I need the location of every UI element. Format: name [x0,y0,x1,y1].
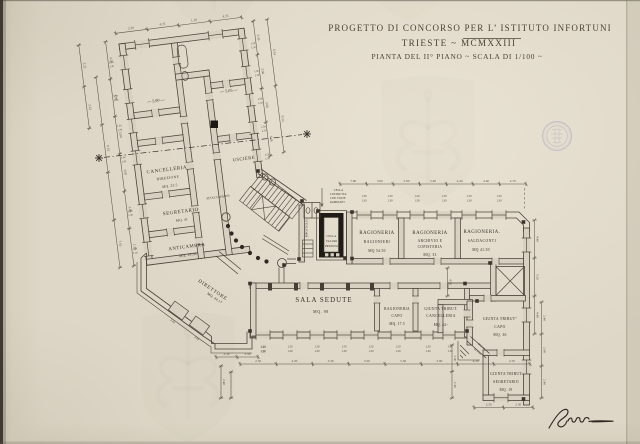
svg-text:DIREZIONE: DIREZIONE [156,175,179,182]
svg-text:1.30: 1.30 [251,46,257,50]
svg-text:MQ. 44.-: MQ. 44.- [434,323,449,327]
svg-text:2.30: 2.30 [255,359,261,363]
svg-text:2.50: 2.50 [245,352,251,356]
svg-text:1.30: 1.30 [341,349,347,353]
svg-text:RAGIONERIA: RAGIONERIA [412,231,447,236]
svg-text:4.50: 4.50 [449,279,453,285]
svg-text:1.50: 1.50 [425,345,431,349]
svg-text:1.50: 1.50 [496,194,502,198]
svg-text:MQ 54.50: MQ 54.50 [368,249,386,253]
svg-text:1.50: 1.50 [441,194,447,198]
svg-text:1.30: 1.30 [121,160,127,164]
svg-text:3.00: 3.00 [114,94,119,101]
svg-text:4.40: 4.40 [536,236,540,242]
svg-text:1.30: 1.30 [466,199,472,203]
svg-text:CON VOLTE: CON VOLTE [330,197,346,200]
svg-text:ATTACCAPANNI: ATTACCAPANNI [206,194,230,201]
svg-text:RAGIONERIA.: RAGIONERIA. [463,230,500,235]
svg-text:2.60: 2.60 [543,347,547,353]
svg-text:VALORI: VALORI [326,239,337,243]
svg-text:1.30: 1.30 [387,199,393,203]
svg-text:MQ. 19: MQ. 19 [500,388,513,392]
svg-text:1.30: 1.30 [128,214,134,218]
svg-text:2.50: 2.50 [515,402,521,406]
svg-text:ARCHIVIO E: ARCHIVIO E [418,239,443,243]
svg-text:4.40: 4.40 [536,312,540,318]
svg-text:RAMPANTI: RAMPANTI [330,201,345,204]
svg-text:GIUNTA TRIBUT.: GIUNTA TRIBUT. [424,307,457,311]
svg-text:MQ. 36: MQ. 36 [493,333,506,337]
svg-text:1.20: 1.20 [260,350,266,354]
svg-text:2.40: 2.40 [543,379,547,385]
svg-text:1.30: 1.30 [109,65,115,69]
svg-text:1.50: 1.50 [258,97,264,101]
svg-text:3.00: 3.00 [118,131,123,138]
svg-text:SALDACONTI: SALDACONTI [468,239,497,243]
svg-text:2.70: 2.70 [510,179,516,183]
svg-text:GIUNTA TRIBUT°: GIUNTA TRIBUT° [483,317,518,321]
svg-text:4.40: 4.40 [457,179,463,183]
svg-text:3.22: 3.22 [82,62,87,69]
svg-text:1.30: 1.30 [425,349,431,353]
svg-text:USCIERE: USCIERE [232,155,255,163]
svg-text:TRIESTE ~ MCMXXIII: TRIESTE ~ MCMXXIII [402,38,517,48]
svg-text:CELLA: CELLA [326,234,337,238]
svg-text:3.50: 3.50 [364,359,370,363]
svg-text:2.50: 2.50 [486,402,492,406]
svg-text:3.22: 3.22 [88,104,93,111]
svg-text:3.20: 3.20 [109,57,114,64]
svg-text:GIUNTA TRIBUT: GIUNTA TRIBUT [490,372,522,376]
svg-text:SALA SEDUTE: SALA SEDUTE [295,297,352,304]
svg-text:5.40: 5.40 [430,179,436,183]
svg-text:1.50: 1.50 [414,194,420,198]
svg-text:1.30: 1.30 [496,199,502,203]
svg-text:3.00: 3.00 [123,169,128,176]
svg-text:1.30: 1.30 [314,349,320,353]
svg-text:1.50: 1.50 [368,345,374,349]
svg-text:1.50: 1.50 [261,125,267,129]
svg-text:1.20: 1.20 [132,244,137,251]
svg-text:PREZIOSI: PREZIOSI [325,245,338,248]
svg-text:2.40: 2.40 [453,382,457,388]
svg-text:4.25: 4.25 [222,14,229,19]
svg-text:CANCELLERIA: CANCELLERIA [146,165,187,175]
svg-text:— 5.05 —: — 5.05 — [219,87,239,94]
svg-text:RAGIONIERI: RAGIONIERI [364,240,391,244]
svg-text:COPISTERIA: COPISTERIA [418,245,443,249]
svg-text:1.50: 1.50 [387,194,393,198]
svg-text:PROGETTO DI CONCORSO PER L: PROGETTO DI CONCORSO PER L’ ISTITUTO INF… [328,23,612,33]
svg-text:3.46: 3.46 [269,135,274,142]
svg-text:2.40: 2.40 [222,379,226,385]
svg-text:1.30: 1.30 [262,129,268,133]
svg-text:CANCELLERIA: CANCELLERIA [426,314,455,318]
svg-text:1.50: 1.50 [361,194,367,198]
svg-text:3.00: 3.00 [436,359,442,363]
svg-text:1.30: 1.30 [133,251,139,255]
svg-text:1.50: 1.50 [117,124,123,128]
svg-text:1.30: 1.30 [395,349,401,353]
svg-text:3.46: 3.46 [256,34,261,41]
svg-text:1.30: 1.30 [265,157,271,161]
svg-text:PIANTA DEL II° PIANO ~ SC: PIANTA DEL II° PIANO ~ SCALA DI 1/100 ~ [371,52,542,61]
svg-text:4.20: 4.20 [291,359,297,363]
svg-text:1.50: 1.50 [314,345,320,349]
svg-text:2.20: 2.20 [128,26,135,31]
svg-text:1.30: 1.30 [414,199,420,203]
svg-text:MQ. 23.5: MQ. 23.5 [162,183,178,189]
svg-text:3.08: 3.08 [265,102,270,109]
svg-text:1.30: 1.30 [287,349,293,353]
svg-text:3.80: 3.80 [128,206,133,213]
svg-text:3.00: 3.00 [377,179,383,183]
svg-text:2.50: 2.50 [224,352,230,356]
svg-text:RAGIONERIA: RAGIONERIA [384,307,410,311]
svg-text:5.30: 5.30 [400,359,406,363]
svg-text:RIPOSTIGLIO: RIPOSTIGLIO [306,219,309,237]
svg-text:1.44: 1.44 [260,345,266,349]
svg-text:MQ. 41: MQ. 41 [175,217,188,223]
svg-text:MQ. 98: MQ. 98 [313,310,329,314]
svg-text:MQ. 17.5: MQ. 17.5 [389,322,404,326]
svg-text:4.40: 4.40 [483,179,489,183]
svg-text:CAPO: CAPO [494,325,505,329]
svg-text:1.50: 1.50 [466,194,472,198]
svg-text:MQ. 33: MQ. 33 [423,253,436,257]
svg-text:1.30: 1.30 [255,74,261,78]
svg-text:3.30: 3.30 [328,359,334,363]
svg-text:4.25: 4.25 [159,22,166,27]
svg-text:1.50: 1.50 [395,345,401,349]
svg-text:RAGIONERIA: RAGIONERIA [359,231,394,236]
svg-text:1.30: 1.30 [361,199,367,203]
svg-text:2.70: 2.70 [509,359,515,363]
svg-text:CAPO: CAPO [392,314,403,318]
svg-text:6.54: 6.54 [280,115,285,122]
svg-text:1.30: 1.30 [441,199,447,203]
svg-text:COSTRUTTA: COSTRUTTA [330,193,347,196]
svg-text:7.10: 7.10 [118,240,123,247]
svg-text:7.60: 7.60 [350,179,356,183]
svg-text:1.30: 1.30 [368,349,374,353]
svg-text:SEGRETARIO: SEGRETARIO [493,380,519,384]
svg-text:1.50: 1.50 [254,70,260,74]
svg-text:2.40: 2.40 [453,355,457,361]
svg-text:1.50: 1.50 [121,156,127,160]
svg-text:6.10: 6.10 [106,145,111,152]
svg-text:6.54: 6.54 [272,49,277,56]
svg-text:1.50: 1.50 [251,42,257,46]
svg-text:MQ 41.50: MQ 41.50 [472,248,490,252]
svg-text:CELLA: CELLA [334,189,343,192]
svg-text:4.20: 4.20 [473,359,479,363]
svg-text:— 5.90 —: — 5.90 — [146,97,166,104]
svg-text:2.40: 2.40 [543,315,547,321]
svg-text:1.30: 1.30 [258,101,264,105]
svg-text:1.50: 1.50 [287,345,293,349]
svg-text:5.20: 5.20 [536,274,540,280]
svg-text:1.50: 1.50 [341,345,347,349]
svg-text:5.00: 5.00 [403,179,409,183]
svg-text:1.10: 1.10 [191,18,198,23]
svg-text:3.08: 3.08 [260,68,265,75]
